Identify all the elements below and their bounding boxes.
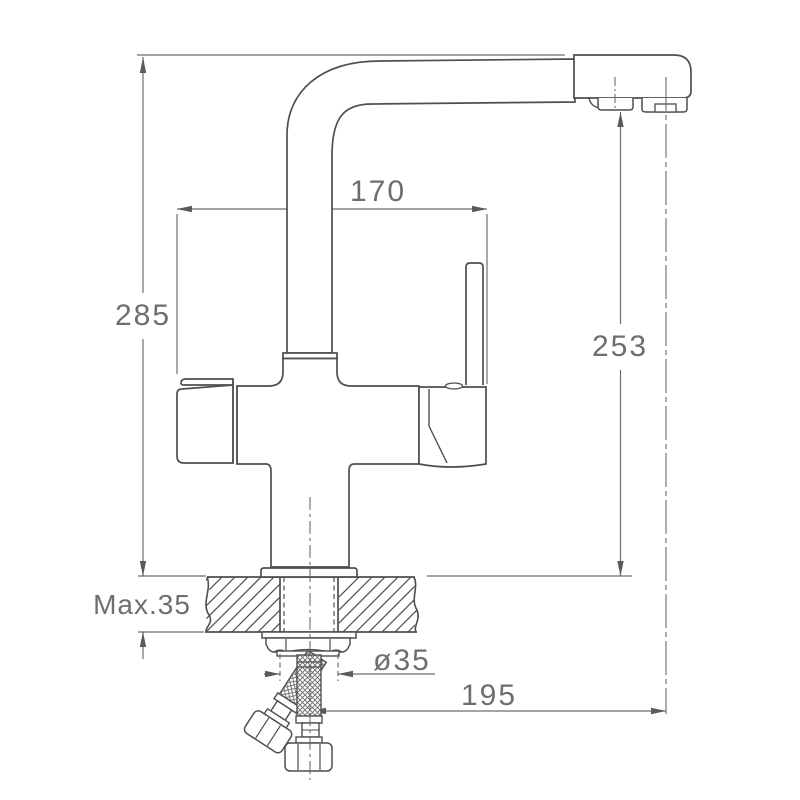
mounting-washer <box>262 632 356 638</box>
under-counter-hardware-group <box>243 632 356 771</box>
left-knob-cap <box>181 379 233 385</box>
body-cross <box>237 359 419 568</box>
dim-spout-height-label: 253 <box>592 332 648 362</box>
left-knob-junction <box>233 379 237 464</box>
base-flange <box>261 568 357 577</box>
shank-thread-dashed <box>284 577 334 632</box>
dim-counter-thickness-label: Max.35 <box>93 591 191 619</box>
left-knob <box>177 385 233 463</box>
hose-vertical-crimp <box>296 716 322 723</box>
dim-hole-diameter-label: ø35 <box>373 646 431 676</box>
mounting-hole-walls <box>280 577 338 632</box>
lever-hinge <box>446 383 463 389</box>
countertop-hatch-right <box>300 574 479 636</box>
spout-tube <box>287 59 575 353</box>
dim-outlet-offset-label: 195 <box>461 681 517 711</box>
counter-break-edge-right <box>414 577 418 632</box>
countertop-group <box>150 574 479 636</box>
hose-vertical-braid <box>297 655 321 716</box>
spout-head <box>574 55 691 98</box>
faucet-body-group <box>177 55 691 577</box>
faucet-technical-drawing <box>0 0 800 800</box>
drawing-canvas: 170 285 253 Max.35 ø35 195 <box>0 0 800 800</box>
filter-lever-paddle <box>466 263 483 385</box>
hose-vertical-nut <box>285 743 332 771</box>
dim-spout-reach-label: 170 <box>350 177 406 207</box>
dim-total-height-label: 285 <box>115 301 171 331</box>
